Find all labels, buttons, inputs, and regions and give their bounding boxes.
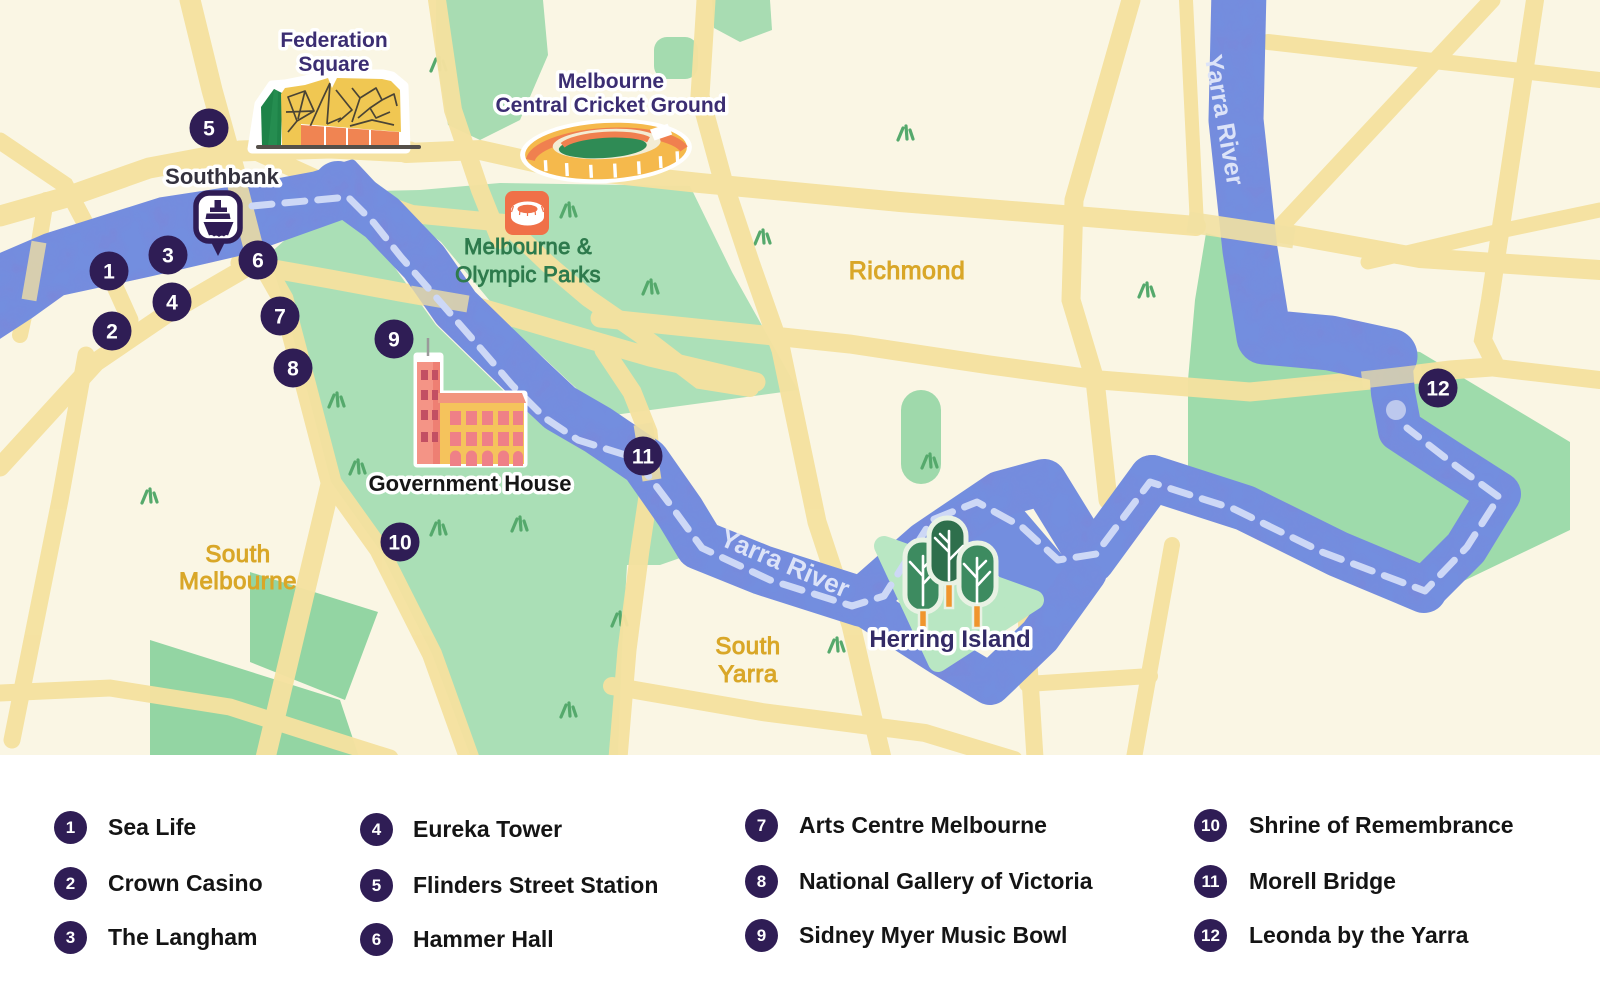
svg-text:Central Cricket Ground: Central Cricket Ground [495, 94, 726, 117]
svg-text:11: 11 [632, 446, 655, 469]
svg-text:10: 10 [388, 532, 411, 555]
svg-text:South: South [715, 633, 780, 660]
svg-text:South: South [205, 541, 270, 568]
svg-text:Melbourne: Melbourne [558, 70, 664, 93]
svg-text:2: 2 [106, 321, 118, 344]
svg-text:5: 5 [203, 118, 215, 141]
svg-text:Melbourne: Melbourne [179, 568, 297, 595]
svg-text:4: 4 [166, 292, 178, 315]
svg-text:Olympic Parks: Olympic Parks [455, 262, 601, 287]
svg-text:9: 9 [388, 329, 400, 352]
svg-text:Yarra: Yarra [718, 661, 778, 688]
svg-text:Government House: Government House [369, 471, 572, 496]
svg-text:Square: Square [298, 53, 369, 76]
svg-text:12: 12 [1426, 378, 1449, 401]
svg-text:Federation: Federation [280, 29, 387, 52]
svg-text:3: 3 [162, 245, 174, 268]
svg-text:7: 7 [274, 306, 286, 329]
svg-text:Southbank: Southbank [165, 164, 279, 189]
svg-text:8: 8 [287, 358, 299, 381]
svg-text:1: 1 [103, 261, 115, 284]
svg-text:Richmond: Richmond [849, 257, 966, 285]
svg-text:Herring Island: Herring Island [869, 626, 1030, 653]
svg-text:Melbourne &: Melbourne & [464, 234, 592, 259]
svg-text:6: 6 [252, 250, 264, 273]
